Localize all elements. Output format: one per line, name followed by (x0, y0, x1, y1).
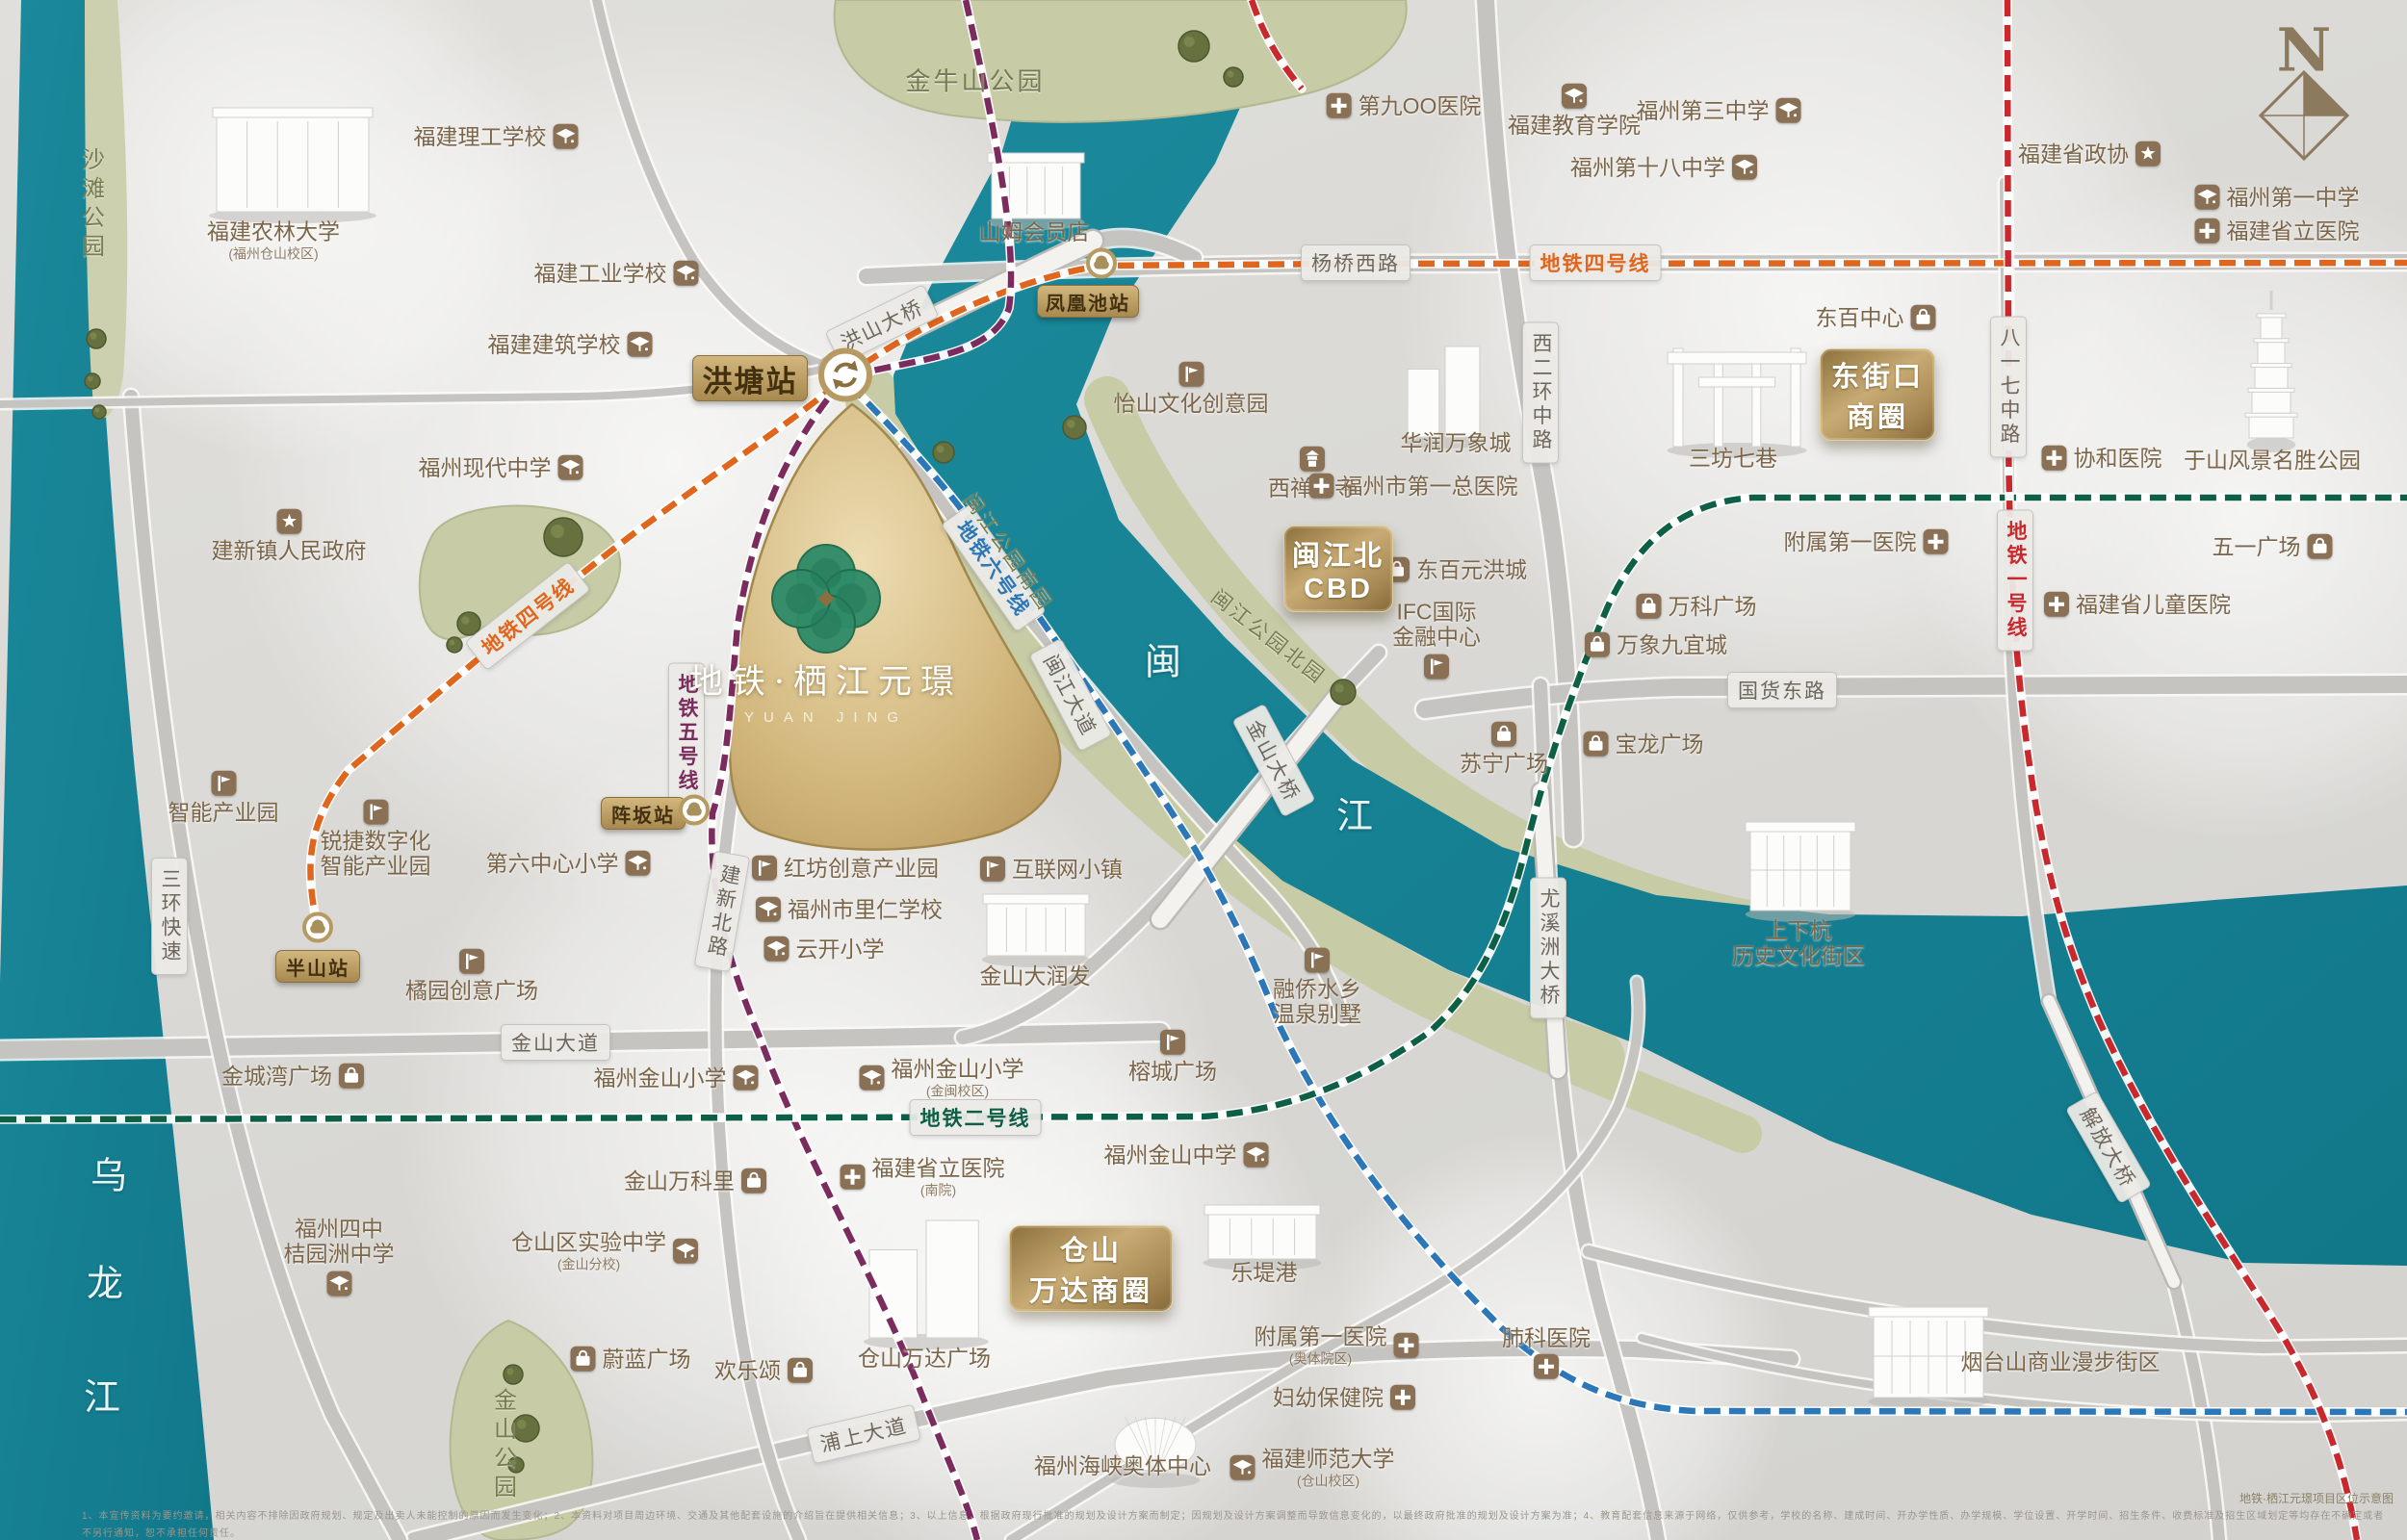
poi-label: 五一广场 (2213, 534, 2301, 559)
poi-label: 烟台山商业漫步街区 (1961, 1349, 2161, 1374)
poi-label: 东百中心 (1816, 305, 1904, 330)
poi-福建省政协: 福建省政协 (2018, 141, 2161, 167)
poi-苏宁广场: 苏宁广场 (1460, 722, 1548, 776)
poi-榕城广场: 榕城广场 (1128, 1030, 1217, 1084)
poi-label: 于山风景名胜公园 (2184, 448, 2361, 473)
poi-华润万象城: 华润万象城 (1401, 430, 1512, 455)
poi-label: 建新镇人民政府 (212, 538, 367, 563)
poi-福州市里仁学校: 福州市里仁学校 (756, 897, 943, 922)
poi-label: 橘园创意广场 (405, 978, 538, 1003)
poi-福州第十八中学: 福州第十八中学 (1570, 155, 1757, 180)
school-icon (1776, 98, 1801, 123)
poi-宝龙广场: 宝龙广场 (1584, 731, 1704, 757)
road-label-闽江大道: 闽江大道 (1028, 638, 1112, 752)
poi-万象九宜城: 万象九宜城 (1585, 632, 1727, 657)
mall-icon (339, 1064, 364, 1089)
poi-万科广场: 万科广场 (1637, 594, 1757, 619)
poi-label: 万科广场 (1669, 594, 1757, 619)
poi-label: 福建省立医院 (2227, 218, 2360, 244)
poi-福州金山中学: 福州金山中学 (1104, 1142, 1269, 1168)
metro-line-label-line4: 地铁四号线 (464, 561, 590, 671)
poi-东百元洪城: 东百元洪城 (1385, 557, 1527, 582)
poi-label: 福州海峡奥体中心 (1034, 1453, 1211, 1478)
metro-station-icon (1085, 247, 1118, 285)
poi-label: IFC国际金融中心 (1392, 600, 1481, 651)
poi-肺科医院: 肺科医院 (1502, 1325, 1591, 1379)
poi-label: 福建理工学校 (414, 124, 547, 149)
road-label-杨桥西路: 杨桥西路 (1301, 244, 1411, 281)
district-badge-仓山万达商圈: 仓山万达商圈 (1009, 1225, 1173, 1312)
district-badge-闽江北CBD: 闽江北CBD (1283, 526, 1393, 612)
poi-三坊七巷: 三坊七巷 (1689, 446, 1777, 471)
poi-label: 华润万象城 (1401, 430, 1512, 455)
poi-label: 福建师范大学(仓山校区) (1262, 1447, 1395, 1490)
poi-label: 互联网小镇 (1012, 857, 1123, 882)
road-label-解放大桥: 解放大桥 (2065, 1091, 2152, 1204)
poi-label: 附属第一医院(奥体院区) (1255, 1324, 1387, 1368)
station-badge-洪塘站: 洪塘站 (692, 355, 808, 401)
mall-icon (1585, 632, 1610, 657)
metro-line-label-line4: 地铁四号线 (1530, 244, 1662, 281)
poi-label: 福州四中桔园洲中学 (284, 1217, 395, 1268)
poi-label: 第六中心小学 (486, 851, 619, 876)
poi-sublabel: (奥体院区) (1289, 1351, 1352, 1367)
park-label-金牛山公园: 金牛山公园 (905, 63, 1045, 98)
temple-icon (1300, 447, 1325, 472)
road-label-金山大桥: 金山大桥 (1231, 704, 1315, 817)
hospital-icon (2044, 592, 2069, 617)
road-label-三环快速: 三环快速 (151, 858, 188, 975)
poi-乐堤港: 乐堤港 (1231, 1260, 1298, 1285)
school-icon (2195, 185, 2220, 210)
poi-label: 三坊七巷 (1689, 446, 1777, 471)
school-icon (860, 1065, 885, 1091)
biz-icon (459, 949, 484, 974)
poi-sublabel: (金闽校区) (926, 1084, 989, 1099)
project-marker: 地铁·栖江元璟 YUAN JING (689, 654, 963, 726)
poi-label: 福建工业学校 (534, 261, 667, 286)
poi-label: 福州金山小学 (594, 1065, 727, 1091)
biz-icon (211, 771, 236, 796)
school-icon (1562, 84, 1587, 109)
metro-station-icon (678, 794, 711, 832)
mall-icon (571, 1347, 596, 1372)
hospital-icon (2042, 446, 2067, 471)
poi-福建师范大学: 福建师范大学(仓山校区) (1230, 1447, 1395, 1490)
poi-label: 榕城广场 (1128, 1059, 1217, 1084)
poi-label: 福州市里仁学校 (788, 897, 943, 922)
school-icon (734, 1065, 759, 1091)
poi-label: 宝龙广场 (1616, 731, 1704, 757)
poi-label: 福州现代中学 (419, 455, 552, 480)
poi-label: 山姆会员店 (979, 219, 1090, 244)
poi-label: 红坊创意产业园 (784, 856, 939, 881)
poi-仓山万达广场: 仓山万达广场 (858, 1346, 991, 1371)
poi-妇幼保健院: 妇幼保健院 (1273, 1385, 1415, 1410)
poi-五一广场: 五一广场 (2213, 534, 2333, 559)
disclaimer-line1: 1、本宣传资料为要约邀请，相关内容不排除因政府规划、规定及出卖人未能控制的原因而… (82, 1507, 2383, 1522)
poi-sublabel: (福州仓山校区) (228, 246, 318, 262)
road-label-浦上大道: 浦上大道 (806, 1404, 921, 1465)
river-label-龙: 龙 (87, 1254, 123, 1307)
hospital-icon (2195, 218, 2220, 244)
poi-label: 蔚蓝广场 (603, 1347, 691, 1372)
biz-icon (363, 800, 388, 825)
poi-label: 附属第一医院 (1784, 529, 1917, 554)
poi-label: 福建农林大学(福州仓山校区) (207, 219, 340, 263)
biz-icon (752, 856, 777, 881)
poi-福州四中: 福州四中桔园洲中学 (284, 1217, 395, 1296)
road-label-建新北路: 建新北路 (694, 851, 751, 973)
poi-福建省立医院: 福建省立医院 (2195, 218, 2360, 244)
station-badge-半山站: 半山站 (275, 950, 360, 983)
disclaimer-line2: 不另行通知，恕不承担任何责任。 (82, 1525, 241, 1539)
school-icon (674, 261, 699, 286)
poi-福州第三中学: 福州第三中学 (1637, 98, 1801, 123)
poi-橘园创意广场: 橘园创意广场 (405, 949, 538, 1003)
poi-金山大润发: 金山大润发 (980, 963, 1091, 988)
biz-icon (1424, 654, 1449, 679)
poi-上下杭: 上下杭历史文化街区 (1732, 918, 1865, 969)
poi-金城湾广场: 金城湾广场 (221, 1064, 364, 1089)
poi-烟台山商业漫步街区: 烟台山商业漫步街区 (1961, 1349, 2161, 1374)
poi-sublabel: (金山分校) (557, 1257, 620, 1272)
poi-label: 福州金山中学 (1104, 1142, 1237, 1168)
station-badge-凤凰池站: 凤凰池站 (1037, 285, 1139, 318)
poi-东百中心: 东百中心 (1816, 305, 1936, 330)
poi-云开小学: 云开小学 (764, 937, 885, 962)
poi-建新镇人民政府: 建新镇人民政府 (212, 509, 367, 563)
poi-label: 苏宁广场 (1460, 751, 1548, 776)
poi-欢乐颂: 欢乐颂 (714, 1358, 813, 1383)
poi-金山万科里: 金山万科里 (624, 1168, 766, 1193)
park-label-沙滩公园: 沙滩公园 (74, 147, 108, 263)
location-map: 福建理工学校福建工业学校福建建筑学校福州现代中学福建农林大学(福州仓山校区)建新… (0, 0, 2407, 1540)
poi-福建省儿童医院: 福建省儿童医院 (2044, 592, 2231, 617)
poi-label: 仓山区实验中学(金山分校) (511, 1230, 666, 1273)
school-icon (626, 851, 651, 876)
road-label-国货东路: 国货东路 (1727, 672, 1837, 708)
poi-label: 东百元洪城 (1416, 557, 1527, 582)
metro-line-label-line2: 地铁二号线 (910, 1099, 1042, 1136)
poi-label: 妇幼保健院 (1273, 1385, 1384, 1410)
school-icon (673, 1239, 698, 1264)
park-label-金山公园: 金山公园 (486, 1388, 520, 1503)
road-label-八一七中路: 八一七中路 (1990, 317, 2027, 458)
poi-福州金山小学: 福州金山小学 (594, 1065, 759, 1091)
poi-第六中心小学: 第六中心小学 (486, 851, 651, 876)
poi-福建教育学院: 福建教育学院 (1508, 84, 1641, 138)
hospital-icon (1327, 93, 1352, 118)
school-icon (558, 455, 583, 480)
hospital-icon (1924, 529, 1949, 554)
poi-label: 福建教育学院 (1508, 113, 1641, 138)
road-label-西二环中路: 西二环中路 (1522, 322, 1559, 464)
poi-福州海峡奥体中心: 福州海峡奥体中心 (1034, 1453, 1211, 1478)
poi-label: 智能产业园 (168, 800, 279, 825)
poi-福建工业学校: 福建工业学校 (534, 261, 699, 286)
mall-icon (2308, 534, 2333, 559)
project-name-en: YUAN JING (689, 709, 963, 726)
mall-icon (1911, 305, 1936, 330)
poi-第九OO医院: 第九OO医院 (1327, 93, 1482, 118)
poi-label: 金山万科里 (624, 1168, 735, 1193)
poi-sublabel: (仓山校区) (1297, 1474, 1359, 1489)
poi-仓山区实验中学: 仓山区实验中学(金山分校) (511, 1230, 698, 1273)
poi-label: 云开小学 (796, 937, 885, 962)
river-label-闽: 闽 (1145, 632, 1181, 685)
biz-icon (980, 857, 1005, 882)
hospital-icon (1534, 1354, 1559, 1379)
hospital-icon (1390, 1385, 1415, 1410)
school-icon (1732, 155, 1757, 180)
project-name: 地铁·栖江元璟 (689, 654, 963, 704)
poi-label: 锐捷数字化智能产业园 (321, 829, 431, 880)
poi-label: 肺科医院 (1502, 1325, 1591, 1350)
school-icon (628, 332, 653, 357)
poi-label: 金城湾广场 (221, 1064, 332, 1089)
poi-label: 福建省政协 (2018, 141, 2129, 167)
poi-label: 福州第十八中学 (1570, 155, 1725, 180)
poi-于山风景名胜公园: 于山风景名胜公园 (2184, 448, 2361, 473)
road-label-金山大道: 金山大道 (501, 1024, 610, 1061)
compass-icon (2256, 67, 2352, 164)
school-icon (756, 897, 781, 922)
map-caption: 地铁·栖江元璟项目区位示意图 (2239, 1490, 2394, 1506)
poi-label: 上下杭历史文化街区 (1732, 918, 1865, 969)
poi-福建建筑学校: 福建建筑学校 (488, 332, 653, 357)
gov-icon (2135, 141, 2161, 167)
metro-station-icon (301, 911, 334, 949)
mall-icon (788, 1358, 813, 1383)
school-icon (554, 124, 579, 149)
poi-福建农林大学: 福建农林大学(福州仓山校区) (207, 219, 340, 263)
poi-label: 金山大润发 (980, 963, 1091, 988)
poi-山姆会员店: 山姆会员店 (979, 219, 1090, 244)
biz-icon (1160, 1030, 1185, 1055)
poi-sublabel: (南院) (920, 1183, 956, 1198)
poi-label: 福建省立医院(南院) (872, 1156, 1005, 1199)
poi-协和医院: 协和医院 (2042, 446, 2162, 471)
poi-label: 福建建筑学校 (488, 332, 621, 357)
hospital-icon (1394, 1333, 1419, 1358)
map-overlay: 福建理工学校福建工业学校福建建筑学校福州现代中学福建农林大学(福州仓山校区)建新… (0, 0, 2407, 1540)
poi-label: 福州市第一总医院 (1341, 474, 1518, 499)
metro-line-label-line1: 地铁一号线 (1997, 510, 2033, 652)
poi-红坊创意产业园: 红坊创意产业园 (752, 856, 939, 881)
poi-label: 仓山万达广场 (858, 1346, 991, 1371)
poi-label: 协和医院 (2074, 446, 2162, 471)
mall-icon (741, 1168, 766, 1193)
poi-label: 融侨水乡温泉别墅 (1273, 977, 1361, 1028)
poi-福建省立医院: 福建省立医院(南院) (841, 1156, 1005, 1199)
poi-label: 怡山文化创意园 (1114, 391, 1269, 416)
road-label-尤溪洲大桥: 尤溪洲大桥 (1530, 878, 1566, 1019)
poi-label: 乐堤港 (1231, 1260, 1298, 1285)
mall-icon (1491, 722, 1516, 747)
mall-icon (1584, 731, 1609, 757)
hospital-icon (841, 1165, 866, 1190)
school-icon (1230, 1455, 1255, 1480)
poi-福建理工学校: 福建理工学校 (414, 124, 579, 149)
river-label-江: 江 (84, 1368, 120, 1421)
poi-IFC国际: IFC国际金融中心 (1392, 600, 1481, 680)
river-label-江: 江 (1336, 786, 1373, 839)
interchange-station-icon (817, 347, 873, 408)
gov-icon (276, 509, 301, 534)
poi-福州市第一总医院: 福州市第一总医院 (1309, 474, 1518, 499)
district-badge-东街口商圈: 东街口商圈 (1820, 348, 1935, 441)
poi-附属第一医院: 附属第一医院 (1784, 529, 1949, 554)
poi-融侨水乡: 融侨水乡温泉别墅 (1273, 948, 1361, 1028)
river-label-乌: 乌 (91, 1146, 127, 1199)
poi-label: 福州金山小学(金闽校区) (892, 1057, 1024, 1100)
poi-label: 万象九宜城 (1617, 632, 1727, 657)
station-badge-阵坂站: 阵坂站 (601, 797, 686, 830)
poi-福州现代中学: 福州现代中学 (419, 455, 583, 480)
poi-锐捷数字化: 锐捷数字化智能产业园 (321, 800, 431, 880)
school-icon (1244, 1142, 1269, 1168)
poi-福州第一中学: 福州第一中学 (2195, 185, 2360, 210)
school-icon (764, 937, 789, 962)
poi-附属第一医院: 附属第一医院(奥体院区) (1255, 1324, 1419, 1368)
poi-label: 福州第三中学 (1637, 98, 1770, 123)
poi-label: 福州第一中学 (2227, 185, 2360, 210)
poi-互联网小镇: 互联网小镇 (980, 857, 1123, 882)
poi-怡山文化创意园: 怡山文化创意园 (1114, 362, 1269, 416)
school-icon (326, 1270, 351, 1296)
hospital-icon (1309, 474, 1334, 499)
poi-label: 福建省儿童医院 (2076, 592, 2231, 617)
biz-icon (1305, 948, 1330, 973)
mall-icon (1637, 594, 1662, 619)
poi-label: 第九OO医院 (1359, 93, 1482, 118)
poi-智能产业园: 智能产业园 (168, 771, 279, 825)
poi-蔚蓝广场: 蔚蓝广场 (571, 1347, 691, 1372)
poi-福州金山小学: 福州金山小学(金闽校区) (860, 1057, 1024, 1100)
poi-label: 欢乐颂 (714, 1358, 781, 1383)
biz-icon (1178, 362, 1203, 387)
